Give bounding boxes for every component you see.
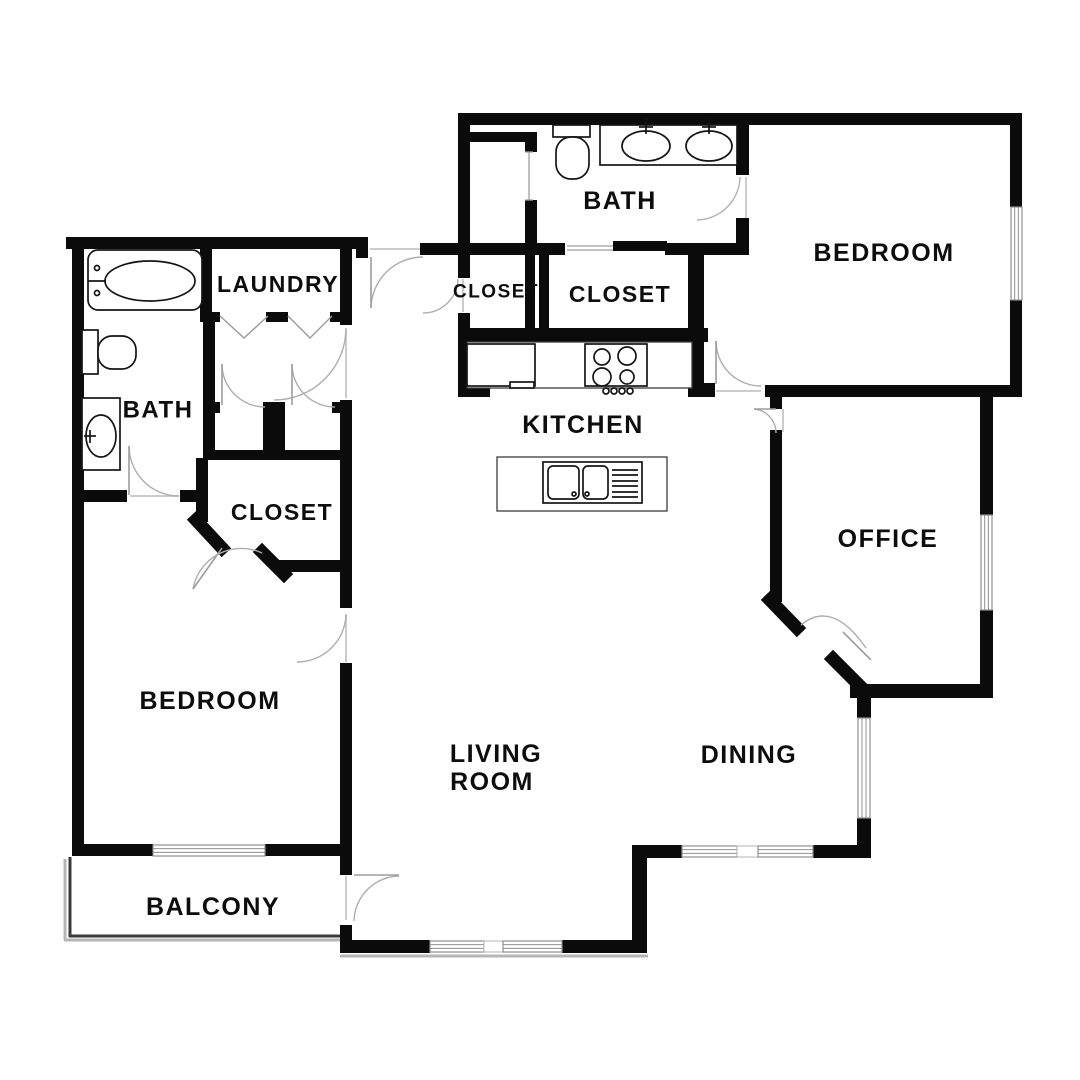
wall bbox=[266, 312, 288, 322]
room-label-office: OFFICE bbox=[838, 525, 939, 553]
bifold-door bbox=[288, 316, 332, 338]
fixture-tub-tap bbox=[95, 266, 100, 271]
window bbox=[1011, 207, 1022, 300]
room-label-bath-upper: BATH bbox=[583, 187, 657, 215]
room-label-balcony: BALCONY bbox=[146, 893, 280, 921]
wall bbox=[340, 237, 352, 325]
room-label-closet-walkin: CLOSET bbox=[569, 281, 671, 307]
room-label-kitchen: KITCHEN bbox=[522, 411, 644, 439]
wall bbox=[265, 844, 352, 856]
wall bbox=[203, 450, 340, 460]
floor-plan: BATHBEDROOMCLOSETCLOSETLAUNDRYBATHKITCHE… bbox=[0, 0, 1080, 1080]
wall-diagonal bbox=[196, 520, 222, 548]
closet-left-door-swing-arc bbox=[193, 548, 262, 589]
wall bbox=[813, 845, 871, 858]
room-label-closet-small: CLOSET bbox=[453, 282, 539, 303]
wall bbox=[330, 312, 352, 322]
fixture-refrigerator bbox=[467, 344, 535, 386]
room-label-dining: DINING bbox=[701, 741, 798, 769]
balcony-door-swing-arc bbox=[354, 876, 399, 921]
wall bbox=[736, 218, 749, 248]
room-label-closet-left: CLOSET bbox=[231, 499, 333, 525]
room-label-bedroom-left: BEDROOM bbox=[139, 687, 280, 715]
wall bbox=[562, 940, 647, 953]
wall bbox=[72, 844, 153, 856]
wall bbox=[539, 252, 549, 332]
wall-diagonal bbox=[262, 552, 284, 574]
office-north-door-swing-arc bbox=[754, 409, 776, 433]
fixture-tub-tap bbox=[95, 291, 100, 296]
room-label-laundry: LAUNDRY bbox=[217, 271, 339, 297]
fixture-toilet-bowl bbox=[98, 336, 136, 369]
wall bbox=[356, 246, 368, 258]
fixture-toilet-tank bbox=[553, 125, 590, 137]
wall bbox=[850, 684, 993, 698]
wall bbox=[340, 663, 352, 875]
fixture-fridge-handle bbox=[510, 382, 534, 388]
room-label-bath-left: BATH bbox=[123, 397, 194, 424]
fixture-drain bbox=[572, 492, 576, 496]
fixture-stove-knob bbox=[611, 388, 617, 394]
room-label-living-room-line2: ROOM bbox=[450, 768, 534, 796]
fixture-toilet-bowl bbox=[556, 137, 589, 179]
fixture-drain bbox=[585, 492, 589, 496]
fixture-burner bbox=[620, 370, 634, 384]
wall bbox=[525, 132, 537, 152]
wall bbox=[980, 397, 993, 515]
fixture-burner bbox=[618, 347, 636, 365]
bath-left-door-swing-arc bbox=[129, 446, 179, 496]
fixture-burner bbox=[594, 349, 610, 365]
wall bbox=[203, 402, 220, 413]
wall bbox=[736, 113, 749, 175]
wall bbox=[458, 328, 708, 342]
window bbox=[430, 941, 484, 952]
closet-a-door-swing-arc bbox=[222, 364, 265, 407]
window bbox=[503, 941, 562, 952]
fixture-sink bbox=[686, 131, 732, 161]
wall bbox=[770, 397, 782, 409]
wall bbox=[72, 490, 127, 502]
wall bbox=[203, 312, 215, 412]
wall bbox=[632, 845, 647, 953]
bath-upper-door-swing-arc bbox=[697, 177, 740, 220]
office-angled-door-swing-arc bbox=[801, 616, 866, 648]
bedroom-upper-door-swing-arc bbox=[716, 341, 761, 386]
wall bbox=[66, 237, 358, 249]
fixture-bathtub-basin bbox=[105, 261, 195, 301]
room-label-living-room-line1: LIVING bbox=[450, 740, 542, 768]
wall bbox=[765, 385, 1022, 397]
closet-b-door-swing-arc bbox=[292, 364, 335, 407]
wall-diagonal bbox=[770, 600, 797, 628]
window bbox=[153, 845, 265, 856]
window bbox=[682, 846, 737, 857]
window bbox=[758, 846, 813, 857]
closet-left-door-leaf bbox=[193, 548, 222, 589]
wall bbox=[980, 610, 993, 698]
wall-diagonal bbox=[833, 659, 858, 684]
fixture-stove-knob bbox=[627, 388, 633, 394]
fixture-toilet-tank bbox=[82, 330, 98, 374]
bypass-closet-door bbox=[613, 241, 667, 251]
wall bbox=[180, 490, 208, 502]
wall bbox=[263, 402, 285, 413]
entry-door-swing-arc bbox=[371, 257, 423, 308]
window bbox=[981, 515, 992, 610]
window bbox=[858, 718, 870, 818]
fixture-stove-knob bbox=[603, 388, 609, 394]
window-mullion bbox=[737, 846, 758, 857]
wall bbox=[340, 940, 430, 953]
wall bbox=[525, 200, 537, 243]
room-label-bedroom-upper: BEDROOM bbox=[813, 239, 954, 267]
fixture-sink bbox=[622, 131, 670, 161]
fixture-burner bbox=[593, 368, 611, 386]
wall bbox=[340, 400, 352, 608]
wall bbox=[1010, 300, 1022, 397]
floorplan-page: BATHBEDROOMCLOSETCLOSETLAUNDRYBATHKITCHE… bbox=[0, 0, 1080, 1080]
wall bbox=[770, 430, 782, 602]
wall bbox=[1010, 113, 1022, 207]
bedroom-left-door-swing-arc bbox=[297, 615, 346, 662]
fixture-stove-knob bbox=[619, 388, 625, 394]
bifold-door bbox=[220, 316, 268, 338]
wall bbox=[857, 698, 871, 718]
window-mullion bbox=[484, 941, 503, 952]
